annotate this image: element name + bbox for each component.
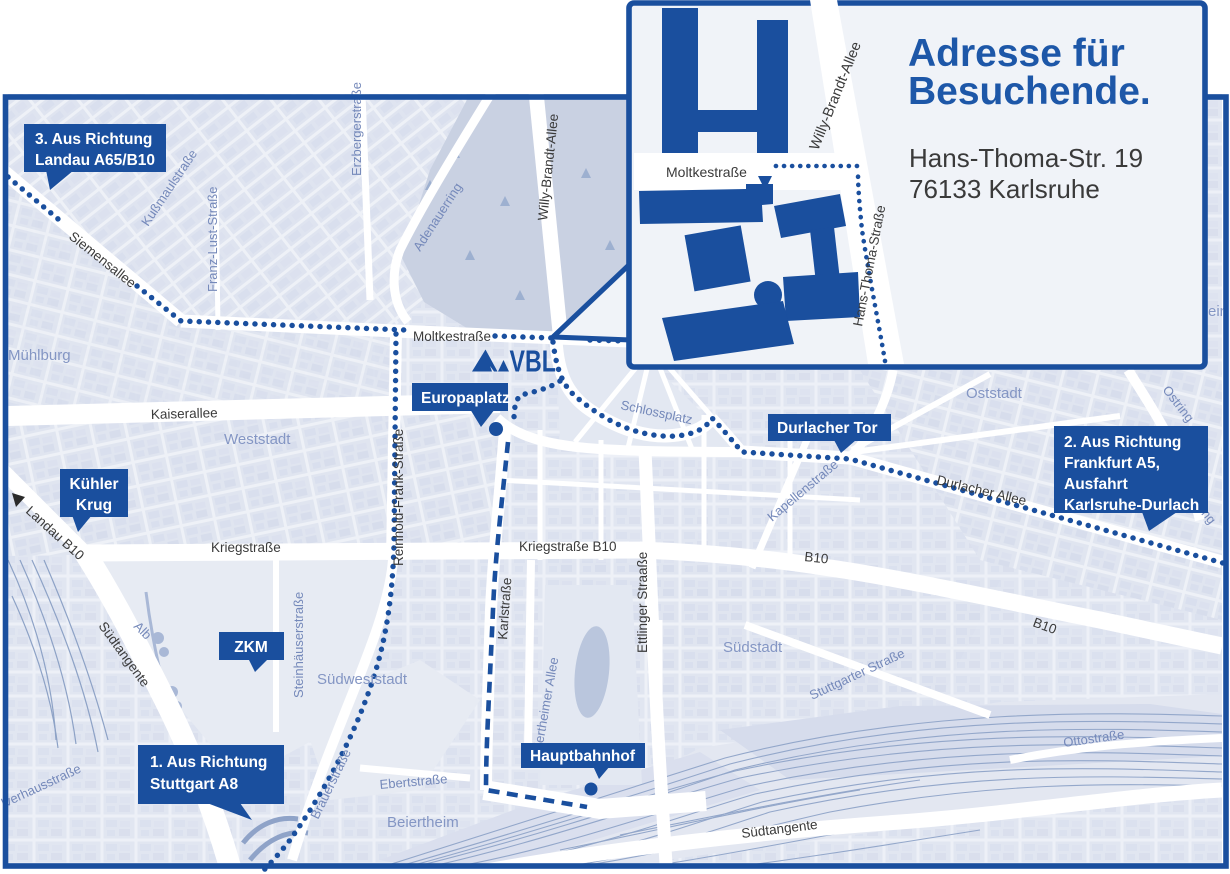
svg-text:Kriegstraße: Kriegstraße — [211, 540, 281, 555]
svg-text:Moltkestraße: Moltkestraße — [666, 164, 747, 180]
svg-text:Moltkestraße: Moltkestraße — [413, 329, 491, 344]
svg-text:Ausfahrt: Ausfahrt — [1064, 476, 1128, 493]
svg-text:Kaiserallee: Kaiserallee — [151, 405, 218, 422]
svg-text:ZKM: ZKM — [234, 639, 268, 656]
svg-text:Mühlburg: Mühlburg — [8, 347, 71, 364]
svg-text:Europaplatz: Europaplatz — [421, 390, 510, 407]
svg-text:Adresse für: Adresse für — [908, 32, 1125, 75]
svg-text:Krug: Krug — [76, 497, 112, 514]
svg-text:3. Aus Richtung: 3. Aus Richtung — [35, 131, 152, 148]
svg-text:Steinhäuserstraße: Steinhäuserstraße — [291, 592, 306, 698]
svg-text:Franz-Lust-Straße: Franz-Lust-Straße — [205, 187, 220, 292]
svg-text:1. Aus Richtung: 1. Aus Richtung — [150, 754, 267, 771]
svg-text:VBL: VBL — [510, 343, 556, 378]
svg-text:Karlsruhe-Durlach: Karlsruhe-Durlach — [1064, 497, 1199, 514]
svg-text:Stuttgart A8: Stuttgart A8 — [150, 776, 238, 793]
svg-text:Beiertheim: Beiertheim — [387, 814, 459, 831]
svg-text:Kühler: Kühler — [69, 476, 118, 493]
svg-text:Weststadt: Weststadt — [224, 431, 291, 448]
svg-text:Oststadt: Oststadt — [966, 385, 1023, 402]
svg-text:2. Aus Richtung: 2. Aus Richtung — [1064, 434, 1181, 451]
svg-text:Durlacher Tor: Durlacher Tor — [777, 420, 878, 437]
svg-text:Besuchende.: Besuchende. — [908, 70, 1151, 113]
svg-text:Frankfurt A5,: Frankfurt A5, — [1064, 455, 1160, 472]
svg-text:Ettlinger Straaße: Ettlinger Straaße — [635, 552, 650, 653]
svg-text:Hans-Thoma-Str. 19: Hans-Thoma-Str. 19 — [909, 143, 1143, 173]
svg-text:Hauptbahnhof: Hauptbahnhof — [530, 748, 636, 765]
svg-text:Landau A65/B10: Landau A65/B10 — [35, 152, 155, 169]
svg-text:Südweststadt: Südweststadt — [317, 671, 408, 688]
svg-text:B10: B10 — [804, 549, 829, 566]
svg-text:Südstadt: Südstadt — [723, 639, 783, 656]
svg-text:Kriegstraße B10: Kriegstraße B10 — [519, 539, 617, 554]
svg-text:Reinhold-Frank-Straße: Reinhold-Frank-Straße — [391, 429, 406, 566]
svg-text:76133 Karlsruhe: 76133 Karlsruhe — [909, 174, 1100, 204]
